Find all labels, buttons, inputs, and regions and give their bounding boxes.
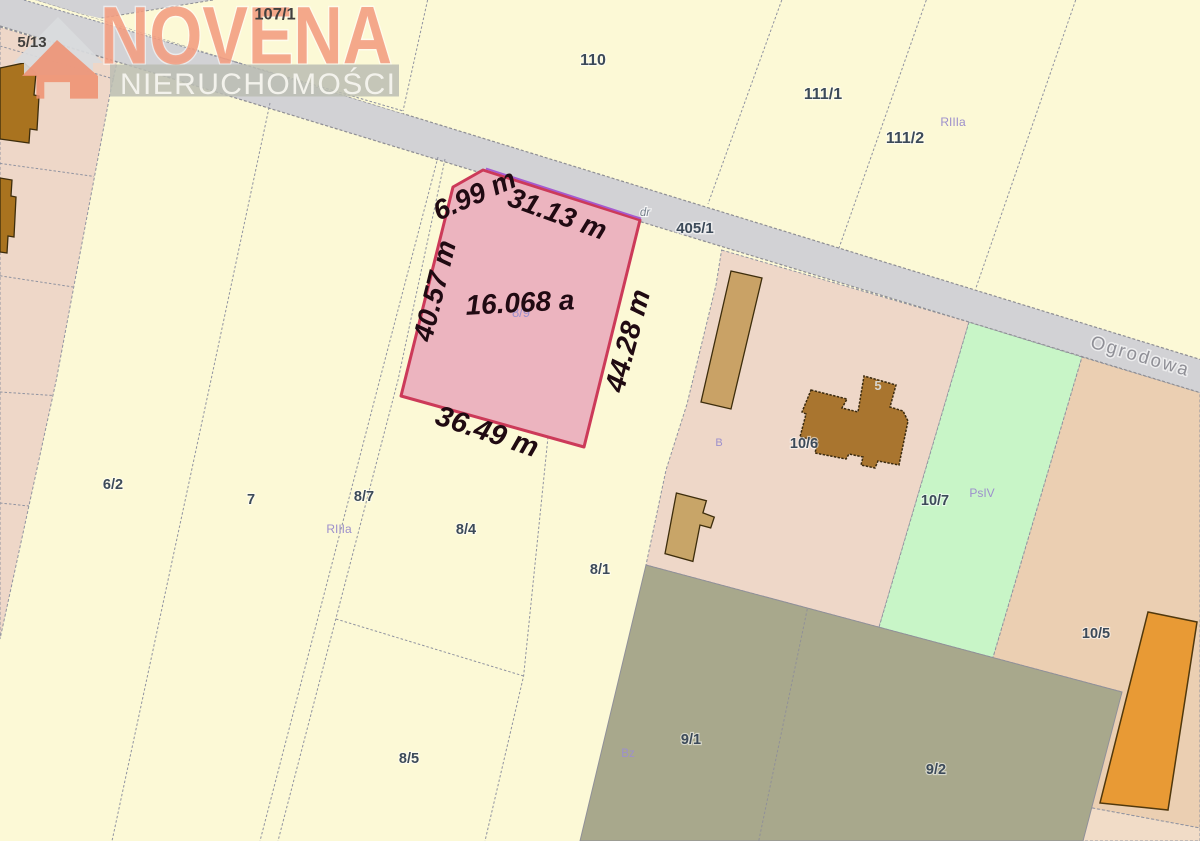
svg-text:PsIV: PsIV xyxy=(969,486,994,500)
svg-text:5: 5 xyxy=(874,378,881,393)
svg-text:RIIIa: RIIIa xyxy=(940,115,966,129)
svg-text:B: B xyxy=(715,437,722,449)
svg-text:111/1: 111/1 xyxy=(804,86,842,103)
svg-text:7: 7 xyxy=(247,492,255,508)
svg-text:8/7: 8/7 xyxy=(354,489,374,505)
svg-text:9/2: 9/2 xyxy=(926,762,946,778)
svg-text:8/4: 8/4 xyxy=(456,522,476,538)
svg-text:10/5: 10/5 xyxy=(1082,626,1110,642)
svg-text:10/6: 10/6 xyxy=(790,436,818,452)
svg-text:6/2: 6/2 xyxy=(103,477,123,493)
svg-text:8/5: 8/5 xyxy=(399,751,419,767)
svg-text:8/1: 8/1 xyxy=(590,562,610,578)
svg-text:5/13: 5/13 xyxy=(17,34,46,51)
svg-text:16.068 a: 16.068 a xyxy=(465,284,575,321)
svg-text:9/1: 9/1 xyxy=(681,732,701,748)
svg-text:dr: dr xyxy=(640,207,651,219)
svg-text:405/1: 405/1 xyxy=(676,220,714,237)
svg-text:RIIIa: RIIIa xyxy=(326,522,352,536)
svg-text:110: 110 xyxy=(580,52,606,69)
svg-text:10/7: 10/7 xyxy=(921,493,949,509)
svg-text:NIERUCHOMOŚCI: NIERUCHOMOŚCI xyxy=(120,67,395,101)
svg-text:Bz: Bz xyxy=(621,748,635,760)
svg-text:107/1: 107/1 xyxy=(254,6,295,24)
svg-text:111/2: 111/2 xyxy=(886,130,924,147)
